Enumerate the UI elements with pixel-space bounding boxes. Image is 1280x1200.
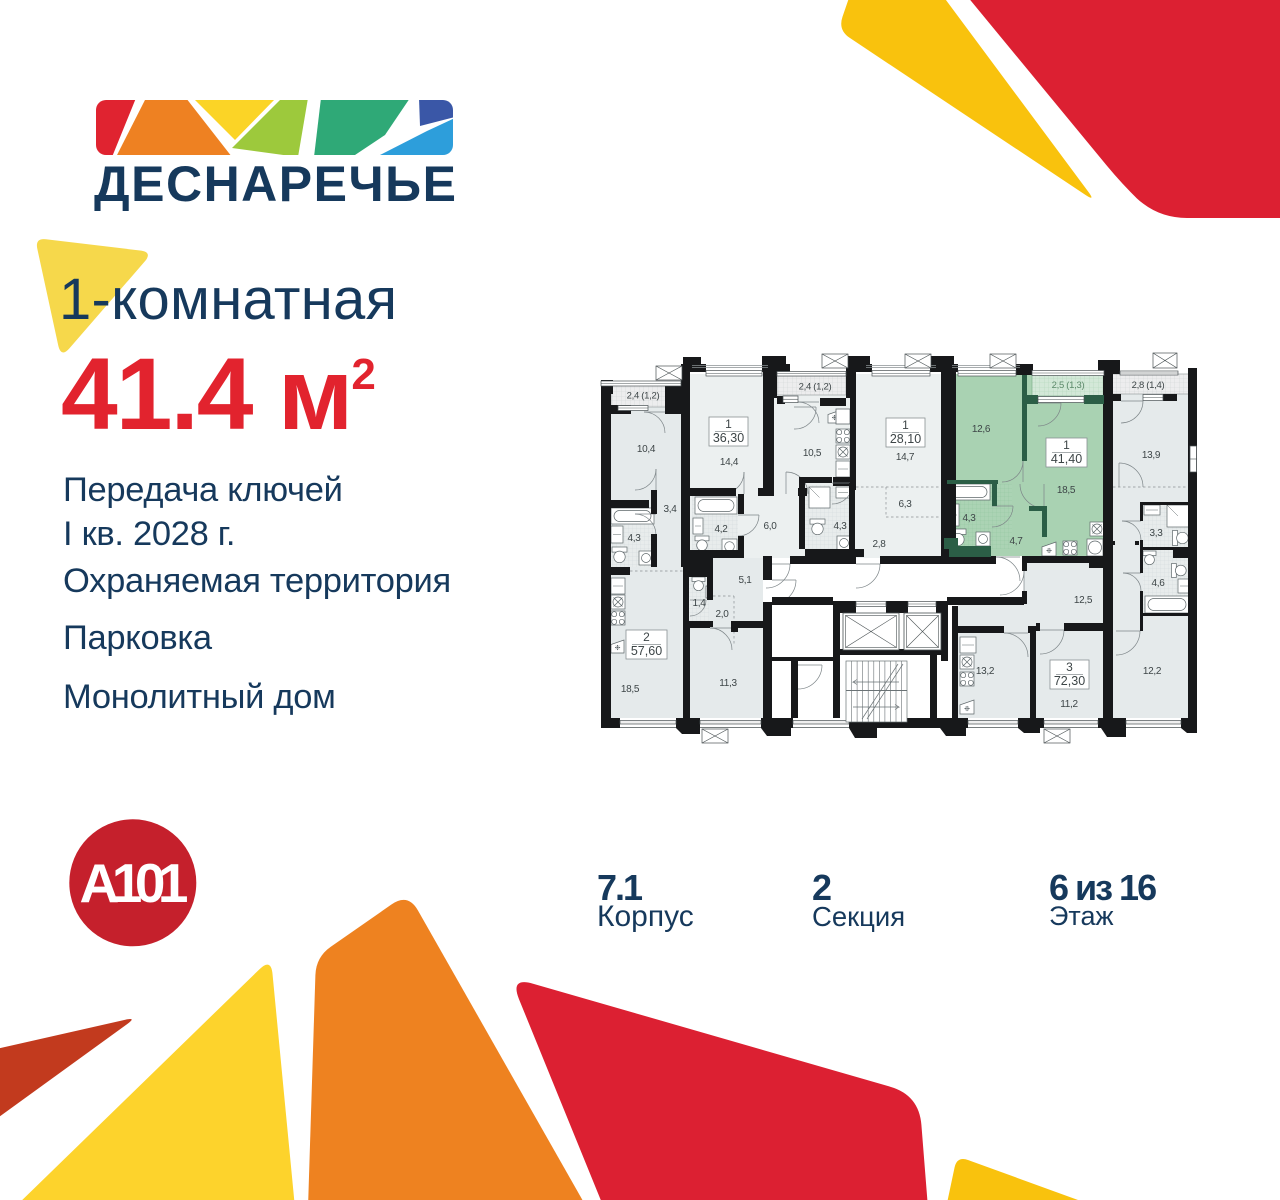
svg-text:28,10: 28,10 (890, 432, 921, 446)
svg-text:4,3: 4,3 (962, 513, 976, 524)
svg-text:18,5: 18,5 (621, 684, 640, 695)
svg-text:4,3: 4,3 (627, 533, 641, 544)
svg-text:4,7: 4,7 (1009, 536, 1023, 547)
svg-text:13,2: 13,2 (976, 666, 995, 677)
svg-text:1: 1 (902, 418, 909, 432)
svg-text:3,3: 3,3 (1149, 528, 1163, 539)
svg-text:10,4: 10,4 (637, 444, 656, 455)
svg-text:2: 2 (643, 630, 650, 644)
svg-text:2,4 (1,2): 2,4 (1,2) (627, 391, 660, 402)
svg-text:2,8 (1,4): 2,8 (1,4) (1132, 380, 1165, 391)
svg-text:72,30: 72,30 (1054, 674, 1085, 688)
svg-text:❉: ❉ (1046, 547, 1052, 555)
svg-text:3,4: 3,4 (663, 504, 677, 515)
svg-text:13,9: 13,9 (1142, 450, 1161, 461)
svg-text:10,5: 10,5 (803, 448, 822, 459)
svg-text:2,0: 2,0 (715, 609, 729, 620)
svg-text:❉: ❉ (615, 644, 621, 652)
svg-text:1: 1 (1063, 438, 1070, 452)
svg-text:11,2: 11,2 (1060, 699, 1078, 710)
svg-text:6,0: 6,0 (763, 521, 777, 532)
svg-text:12,2: 12,2 (1143, 666, 1162, 677)
svg-text:1,4: 1,4 (692, 598, 706, 609)
svg-text:1: 1 (725, 417, 732, 431)
svg-text:12,6: 12,6 (972, 424, 991, 435)
svg-text:4,2: 4,2 (714, 524, 728, 535)
svg-text:14,4: 14,4 (720, 457, 739, 468)
svg-text:4,3: 4,3 (833, 521, 847, 532)
svg-text:14,7: 14,7 (896, 452, 915, 463)
svg-text:4,6: 4,6 (1151, 578, 1165, 589)
svg-text:41,40: 41,40 (1051, 452, 1082, 466)
svg-text:12,5: 12,5 (1074, 595, 1093, 606)
svg-text:18,5: 18,5 (1057, 485, 1076, 496)
svg-text:A101: A101 (80, 852, 188, 914)
svg-text:❉: ❉ (964, 705, 970, 713)
svg-text:11,3: 11,3 (719, 678, 737, 689)
svg-text:36,30: 36,30 (713, 431, 744, 445)
svg-text:2,5 (1,3): 2,5 (1,3) (1052, 380, 1085, 391)
svg-text:2,8: 2,8 (872, 539, 886, 550)
svg-text:3: 3 (1066, 660, 1073, 674)
svg-text:5,1: 5,1 (738, 575, 752, 586)
svg-text:57,60: 57,60 (631, 644, 662, 658)
svg-text:6,3: 6,3 (898, 499, 912, 510)
svg-text:2,4 (1,2): 2,4 (1,2) (799, 382, 832, 393)
